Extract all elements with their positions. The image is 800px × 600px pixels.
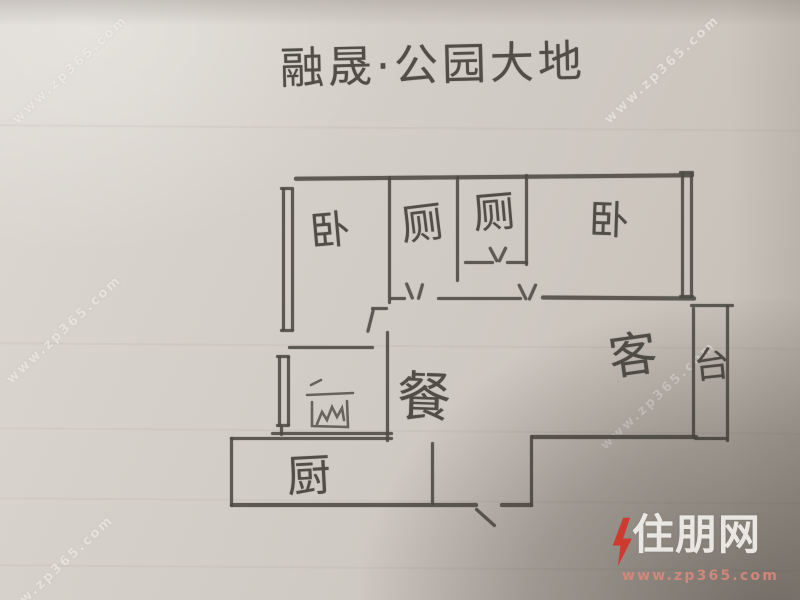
- window-right: [681, 172, 684, 297]
- door-mark-toilet1: [417, 283, 425, 300]
- door-mark-toilet1: [405, 282, 415, 300]
- window-right: [690, 172, 693, 297]
- wall-hall-left: [386, 331, 389, 442]
- logo-url: www.zp365.com: [622, 568, 778, 584]
- wall-balcony-bottom: [694, 437, 728, 440]
- wall-kitchen-top: [230, 437, 393, 440]
- diagonal-watermark: www.zp365.com: [602, 13, 723, 127]
- wall-toilet-divider: [456, 176, 459, 282]
- floorplan-photo: www.zp365.com www.zp365.com www.zp365.co…: [0, 0, 800, 600]
- door-mark-bedroom1: [366, 309, 375, 333]
- logo-text: 住朋网: [632, 514, 761, 556]
- site-logo: 住朋网 www.zp365.com: [608, 512, 778, 584]
- window-right: [679, 295, 694, 298]
- wall-kitchen-bottom: [230, 503, 478, 507]
- room-label-bedroom-2: 卧: [588, 200, 629, 241]
- wall-living-top: [541, 295, 696, 300]
- wall-toilet2-bottom: [464, 261, 494, 264]
- wall-hall-top: [437, 297, 522, 300]
- diagonal-watermark: www.zp365.com: [4, 273, 125, 387]
- window-left-lower: [276, 355, 290, 358]
- paper-rule-line: [0, 342, 800, 350]
- plan-title: 融晟·公园大地: [280, 40, 587, 91]
- wall-toilet2-bottom: [506, 261, 528, 264]
- window-left-upper: [280, 329, 294, 332]
- diagonal-watermark: www.zp365.com: [0, 513, 117, 600]
- wall-top: [294, 173, 694, 180]
- wall-hall-top: [390, 297, 406, 300]
- room-label-toilet-2: 厕: [471, 190, 517, 236]
- wall-kitchen-left: [230, 437, 233, 507]
- wall-bedroom1-right: [388, 176, 391, 304]
- wall-entry-bottom: [500, 503, 533, 507]
- wall-smallroom-top: [288, 346, 374, 349]
- wall-entry-step: [530, 435, 533, 507]
- paper-rule-line: [0, 124, 800, 132]
- basin-sketch-icon: [303, 376, 361, 434]
- room-label-balcony: 台: [692, 346, 732, 386]
- room-label-dining: 餐: [396, 370, 452, 426]
- door-mark-bedroom2: [527, 283, 537, 301]
- diagonal-watermark: www.zp365.com: [10, 13, 131, 127]
- window-left-lower: [276, 424, 290, 427]
- wall-kitchen-right: [431, 442, 434, 505]
- room-label-living: 客: [606, 329, 660, 383]
- door-mark-entry: [474, 507, 496, 527]
- window-left-lower: [278, 356, 281, 426]
- wall-toilet2-right: [525, 174, 528, 266]
- window-left-upper: [291, 189, 294, 331]
- window-left-upper: [282, 188, 285, 331]
- room-label-kitchen: 厨: [286, 454, 332, 500]
- room-label-toilet-1: 厕: [399, 201, 446, 248]
- wall-living-bottom: [531, 435, 698, 439]
- paper-rule-line: [0, 427, 800, 435]
- window-left-upper: [280, 187, 294, 190]
- room-label-bedroom-1: 卧: [308, 209, 351, 252]
- window-left-lower: [287, 356, 290, 426]
- window-right: [679, 171, 694, 174]
